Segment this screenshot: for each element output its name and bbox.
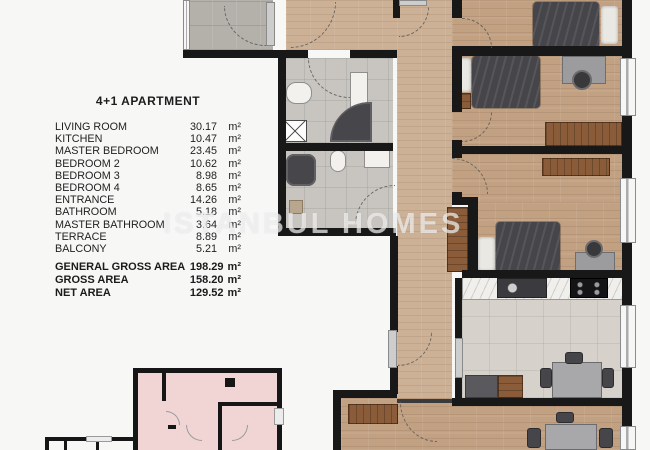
- key-plan-wall: [96, 441, 99, 450]
- room-label: LIVING ROOM: [55, 121, 177, 133]
- key-plan-wall: [225, 378, 235, 387]
- key-plan-wall: [64, 441, 67, 450]
- wall: [622, 0, 632, 58]
- room-label: BALCONY: [55, 243, 177, 255]
- key-plan-window: [274, 408, 284, 425]
- room-label: BEDROOM 4: [55, 182, 177, 194]
- room-label: MASTER BEDROOM: [55, 145, 177, 157]
- key-plan-wall: [133, 368, 282, 373]
- desk-chair: [585, 240, 603, 258]
- watermark: ISTANBUL HOMES: [163, 208, 463, 241]
- kitchen-cabinet-wood: [498, 375, 523, 398]
- wall: [286, 50, 308, 58]
- wall: [468, 202, 478, 276]
- sideboard: [348, 404, 398, 424]
- dining-chair: [565, 352, 583, 364]
- dining-chair: [599, 428, 613, 448]
- room-label: ENTRANCE: [55, 194, 177, 206]
- bed: [496, 222, 560, 277]
- key-plan-wall: [133, 368, 138, 450]
- wall: [622, 116, 632, 178]
- kitchen-cabinet: [465, 375, 498, 398]
- bed: [472, 56, 540, 108]
- room-label: BEDROOM 2: [55, 158, 177, 170]
- dining-table: [552, 362, 602, 398]
- room-label: BEDROOM 3: [55, 170, 177, 182]
- wall: [462, 270, 632, 278]
- wall: [452, 398, 632, 406]
- master-sink: [364, 148, 390, 168]
- door-leaf: [388, 330, 397, 368]
- kitchen-sink: [497, 278, 547, 298]
- key-plan-apartment: [135, 369, 280, 450]
- wall: [278, 143, 393, 151]
- wall: [333, 396, 341, 450]
- wall: [333, 390, 397, 398]
- entrance-door-frame: [399, 0, 427, 6]
- shaft: [283, 120, 307, 142]
- bed-pillow: [478, 237, 495, 271]
- wall: [452, 140, 462, 158]
- wall: [390, 236, 398, 332]
- dining-chair: [602, 368, 614, 388]
- terrace-door: [266, 2, 275, 46]
- desk-chair: [572, 70, 592, 90]
- key-plan-wall: [168, 425, 176, 429]
- summary-label: GENERAL GROSS AREA: [55, 261, 190, 274]
- stove: [570, 278, 608, 298]
- room-label: TERRACE: [55, 231, 177, 243]
- window: [620, 178, 636, 243]
- wall: [278, 50, 286, 150]
- key-plan-wall: [45, 437, 49, 450]
- wall: [452, 0, 462, 18]
- wall: [622, 243, 632, 305]
- dining-chair: [556, 412, 574, 423]
- bathtub: [286, 82, 312, 104]
- wardrobe: [545, 122, 622, 146]
- room-label: BATHROOM: [55, 206, 177, 218]
- wall: [452, 48, 462, 112]
- key-plan-wall: [162, 373, 166, 401]
- master-shower: [286, 154, 316, 186]
- key-plan-wall: [218, 402, 278, 406]
- summary-label: NET AREA: [55, 287, 190, 300]
- dining-chair: [540, 368, 552, 388]
- room-label: MASTER BATHROOM: [55, 219, 177, 231]
- wall: [462, 146, 632, 154]
- kitchen-door-frame: [455, 338, 463, 378]
- bed-pillow: [601, 6, 618, 44]
- summary-label: GROSS AREA: [55, 274, 190, 287]
- living-table: [545, 424, 597, 450]
- bed: [533, 2, 599, 48]
- wall: [350, 50, 397, 58]
- room-label: KITCHEN: [55, 133, 177, 145]
- void-area: [285, 233, 390, 391]
- dining-chair: [527, 428, 541, 448]
- wall: [183, 50, 288, 58]
- window: [620, 58, 636, 116]
- wardrobe: [542, 158, 610, 176]
- wall: [622, 368, 632, 426]
- key-plan-wall: [218, 406, 222, 450]
- terrace-glass-wall: [183, 0, 190, 50]
- window: [620, 305, 636, 368]
- key-plan-wall: [277, 425, 282, 450]
- window: [620, 426, 636, 450]
- key-plan-window: [86, 436, 112, 442]
- toilet: [330, 150, 346, 172]
